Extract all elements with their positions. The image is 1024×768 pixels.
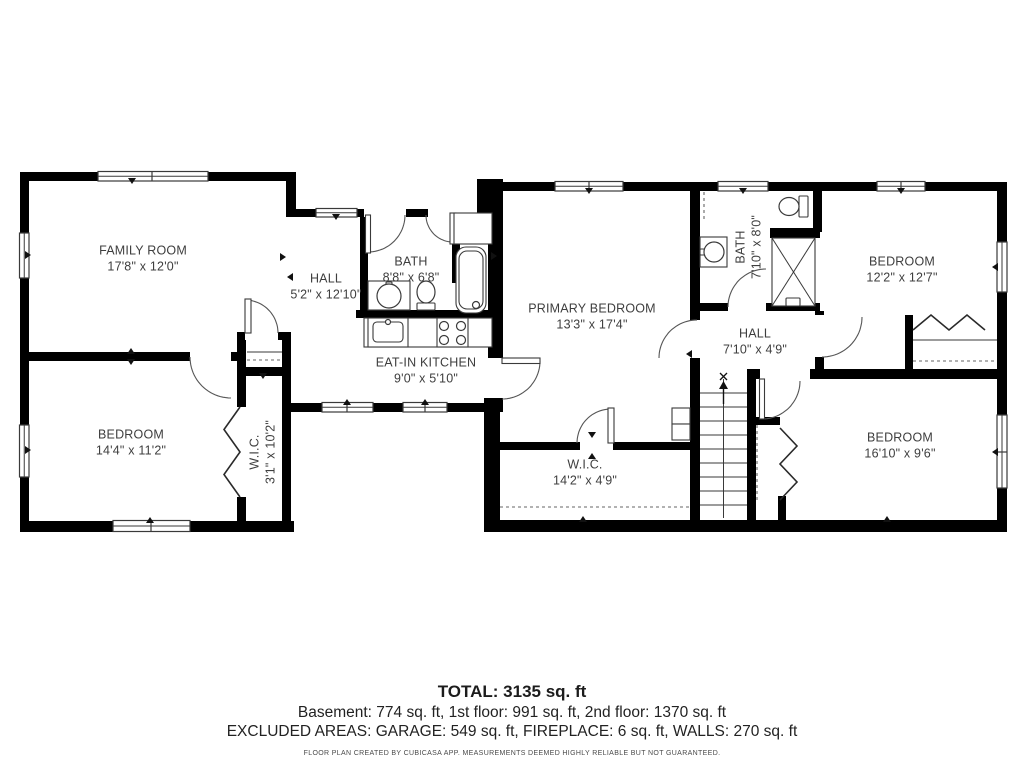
room-label-bedroom-bottom-right: BEDROOM 16'10" x 9'6" [864,431,935,462]
room-dims: 13'3" x 17'4" [528,317,656,333]
room-name: HALL [290,272,361,288]
room-dims: 9'0" x 5'10" [376,371,477,387]
room-label-bath-left: BATH 8'8" x 6'8" [383,255,440,286]
room-dims: 16'10" x 9'6" [864,446,935,462]
room-dims: 14'2" x 4'9" [553,473,617,489]
room-name: BATH [734,215,750,279]
room-name: HALL [723,327,787,343]
room-name: EAT-IN KITCHEN [376,356,477,372]
floor-areas-text: Basement: 774 sq. ft, 1st floor: 991 sq.… [0,704,1024,722]
room-label-hall-left: HALL 5'2" x 12'10" [290,272,361,303]
room-label-family-room: FAMILY ROOM 17'8" x 12'0" [99,244,187,275]
disclaimer-text: FLOOR PLAN CREATED BY CUBICASA APP. MEAS… [0,750,1024,757]
room-dims: 8'8" x 6'8" [383,270,440,286]
room-name: BEDROOM [866,255,937,271]
room-label-wic-large: W.I.C. 14'2" x 4'9" [553,458,617,489]
room-label-bedroom-top-right: BEDROOM 12'2" x 12'7" [866,255,937,286]
floor-plan-page: FAMILY ROOM 17'8" x 12'0" HALL 5'2" x 12… [0,0,1024,768]
room-name: PRIMARY BEDROOM [528,302,656,318]
room-name: BEDROOM [864,431,935,447]
room-dims: 5'2" x 12'10" [290,287,361,303]
room-label-eat-in-kitchen: EAT-IN KITCHEN 9'0" x 5'10" [376,356,477,387]
room-dims: 12'2" x 12'7" [866,270,937,286]
room-dims: 14'4" x 11'2" [96,443,166,459]
room-dims: 17'8" x 12'0" [99,259,187,275]
room-name: BEDROOM [96,428,166,444]
room-dims: 7'10" x 4'9" [723,342,787,358]
room-dims: 7'10" x 8'0" [749,215,765,279]
room-name: BATH [383,255,440,271]
total-area-text: TOTAL: 3135 sq. ft [0,682,1024,702]
room-name: W.I.C. [553,458,617,474]
room-label-primary-bedroom: PRIMARY BEDROOM 13'3" x 17'4" [528,302,656,333]
summary-footer: TOTAL: 3135 sq. ft Basement: 774 sq. ft,… [0,682,1024,757]
room-label-hall-right: HALL 7'10" x 4'9" [723,327,787,358]
room-name: W.I.C. [248,420,264,484]
room-label-bath-right: BATH 7'10" x 8'0" [734,215,765,279]
room-dims: 3'1" x 10'2" [263,420,279,484]
room-label-wic-small: W.I.C. 3'1" x 10'2" [248,420,279,484]
room-label-bedroom-left: BEDROOM 14'4" x 11'2" [96,428,166,459]
excluded-areas-text: EXCLUDED AREAS: GARAGE: 549 sq. ft, FIRE… [0,723,1024,741]
room-name: FAMILY ROOM [99,244,187,260]
